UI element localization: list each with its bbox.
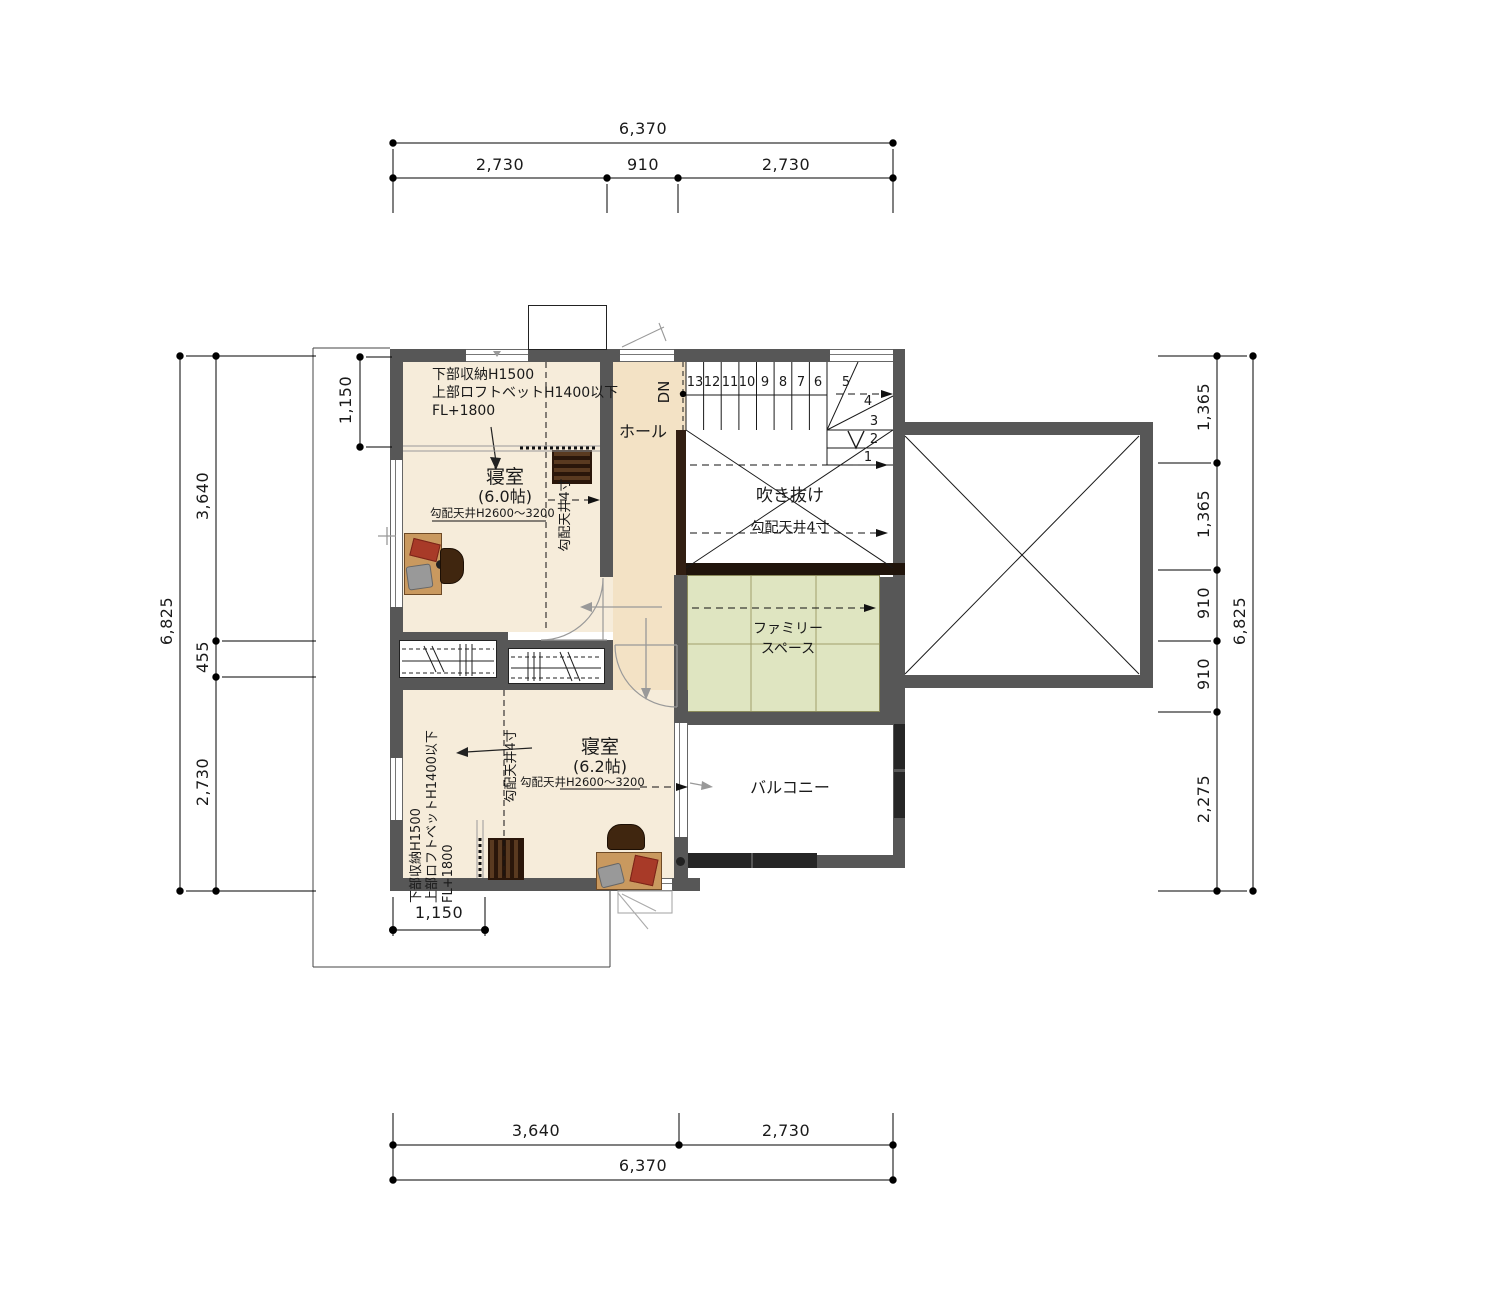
balcony-parapet-divider: [894, 769, 905, 772]
bedroom2-note-line1: 下部収納H1500: [409, 743, 425, 903]
bedroom2-ceiling: 勾配天井H2600～3200: [520, 776, 645, 790]
dim-right-seg5: 2,275: [1194, 769, 1214, 829]
tread-12: 12: [703, 375, 721, 391]
chair-bedroom2: [607, 824, 645, 850]
tread-8: 8: [774, 375, 792, 391]
window-top-bedroom1: [466, 349, 528, 362]
tread-10: 10: [738, 375, 756, 391]
bedroom1-door-opening: [600, 577, 613, 632]
dim-left-total: 6,825: [157, 591, 177, 651]
void-slope: 勾配天井4寸: [737, 520, 843, 537]
balcony-name: バルコニー: [735, 778, 845, 797]
bedroom2-note-line2: 上部ロフトベットH1400以下: [425, 743, 441, 903]
closet-bedroom2: [508, 648, 605, 684]
bedroom1-size: (6.0帖): [455, 487, 555, 506]
bedroom1-name: 寝室: [455, 466, 555, 489]
wall-family-bottom: [687, 712, 905, 725]
bag-bedroom1: [405, 563, 433, 590]
dim-left-offset-bottom: 1,150: [389, 903, 489, 922]
bedroom2-name: 寝室: [550, 736, 650, 759]
roof-square-wall-right: [1140, 422, 1153, 688]
tread-4: 4: [856, 394, 880, 410]
dim-right-seg4: 910: [1194, 644, 1214, 704]
dim-right-seg3: 910: [1194, 573, 1214, 633]
dim-top-seg2: 910: [593, 155, 693, 174]
tread-6: 6: [809, 375, 827, 391]
void-beam: [676, 563, 905, 575]
bedroom1-note-line1: 下部収納H1500: [432, 366, 618, 384]
stairs-dn-label: DN: [654, 362, 674, 422]
tread-9: 9: [756, 375, 774, 391]
tread-1: 1: [856, 450, 880, 466]
stair-handrail: [676, 430, 686, 575]
dim-bottom-total: 6,370: [593, 1156, 693, 1175]
tread-11: 11: [721, 375, 739, 391]
window-top-stairs: [830, 349, 893, 362]
bedroom2-slope: 勾配天井4寸: [502, 716, 522, 816]
dim-left-seg1: 3,640: [193, 466, 213, 526]
wall-right-main: [893, 349, 905, 712]
window-left-bedroom2: [390, 758, 403, 820]
tread-13: 13: [686, 375, 704, 391]
dim-bottom-seg2: 2,730: [736, 1121, 836, 1140]
dim-right-total: 6,825: [1230, 591, 1250, 651]
bedroom1-note-line2: 上部ロフトベットH1400以下: [432, 384, 618, 402]
void-name: 吹き抜け: [740, 486, 840, 506]
dim-right-seg2: 1,365: [1194, 484, 1214, 544]
chair-bedroom1: [440, 548, 464, 584]
floor-plan: 6,370 2,730 910 2,730 3,640 2,730 6,370 …: [0, 0, 1504, 1289]
bedroom2-note: 下部収納H1500 上部ロフトベットH1400以下 FL+1800: [409, 743, 457, 903]
bedroom1-note: 下部収納H1500 上部ロフトベットH1400以下 FL+1800: [432, 366, 618, 420]
hall-name: ホール: [603, 422, 683, 441]
dormer-outline: [528, 305, 607, 350]
balcony-parapet-bottom-divider: [751, 853, 753, 868]
window-top-hall: [620, 349, 674, 362]
family-space-name-line1: ファミリー: [738, 621, 838, 638]
tread-5: 5: [834, 375, 858, 391]
bedroom1-note-line3: FL+1800: [432, 402, 618, 420]
window-left-bedroom1: [390, 460, 403, 607]
dim-top-seg1: 2,730: [450, 155, 550, 174]
tread-7: 7: [792, 375, 810, 391]
wall-family-right: [880, 577, 893, 712]
dim-left-seg2: 455: [193, 627, 213, 687]
dim-left-seg3: 2,730: [193, 752, 213, 812]
window-bedroom2-balcony: [674, 723, 688, 837]
dim-right-seg1: 1,365: [1194, 377, 1214, 437]
bedroom2-size: (6.2帖): [550, 757, 650, 776]
dim-top-total: 6,370: [593, 119, 693, 138]
lamp-bedroom2: [676, 857, 685, 866]
roof-square-wall-bottom: [893, 675, 1153, 688]
closet-bedroom1: [399, 640, 497, 678]
loft-ladder-bedroom2: [488, 838, 524, 880]
dim-top-seg3: 2,730: [736, 155, 836, 174]
bedroom2-note-line3: FL+1800: [441, 743, 457, 903]
family-space-name-line2: スペース: [738, 641, 838, 658]
dim-left-offset-top: 1,150: [336, 370, 356, 430]
bedroom1-ceiling: 勾配天井H2600～3200: [430, 507, 555, 521]
tread-3: 3: [862, 414, 886, 430]
bedroom1-slope: 勾配天井4寸: [556, 465, 576, 565]
dim-bottom-seg1: 3,640: [486, 1121, 586, 1140]
roof-square-wall-top: [893, 422, 1153, 435]
tread-2: 2: [862, 432, 886, 448]
